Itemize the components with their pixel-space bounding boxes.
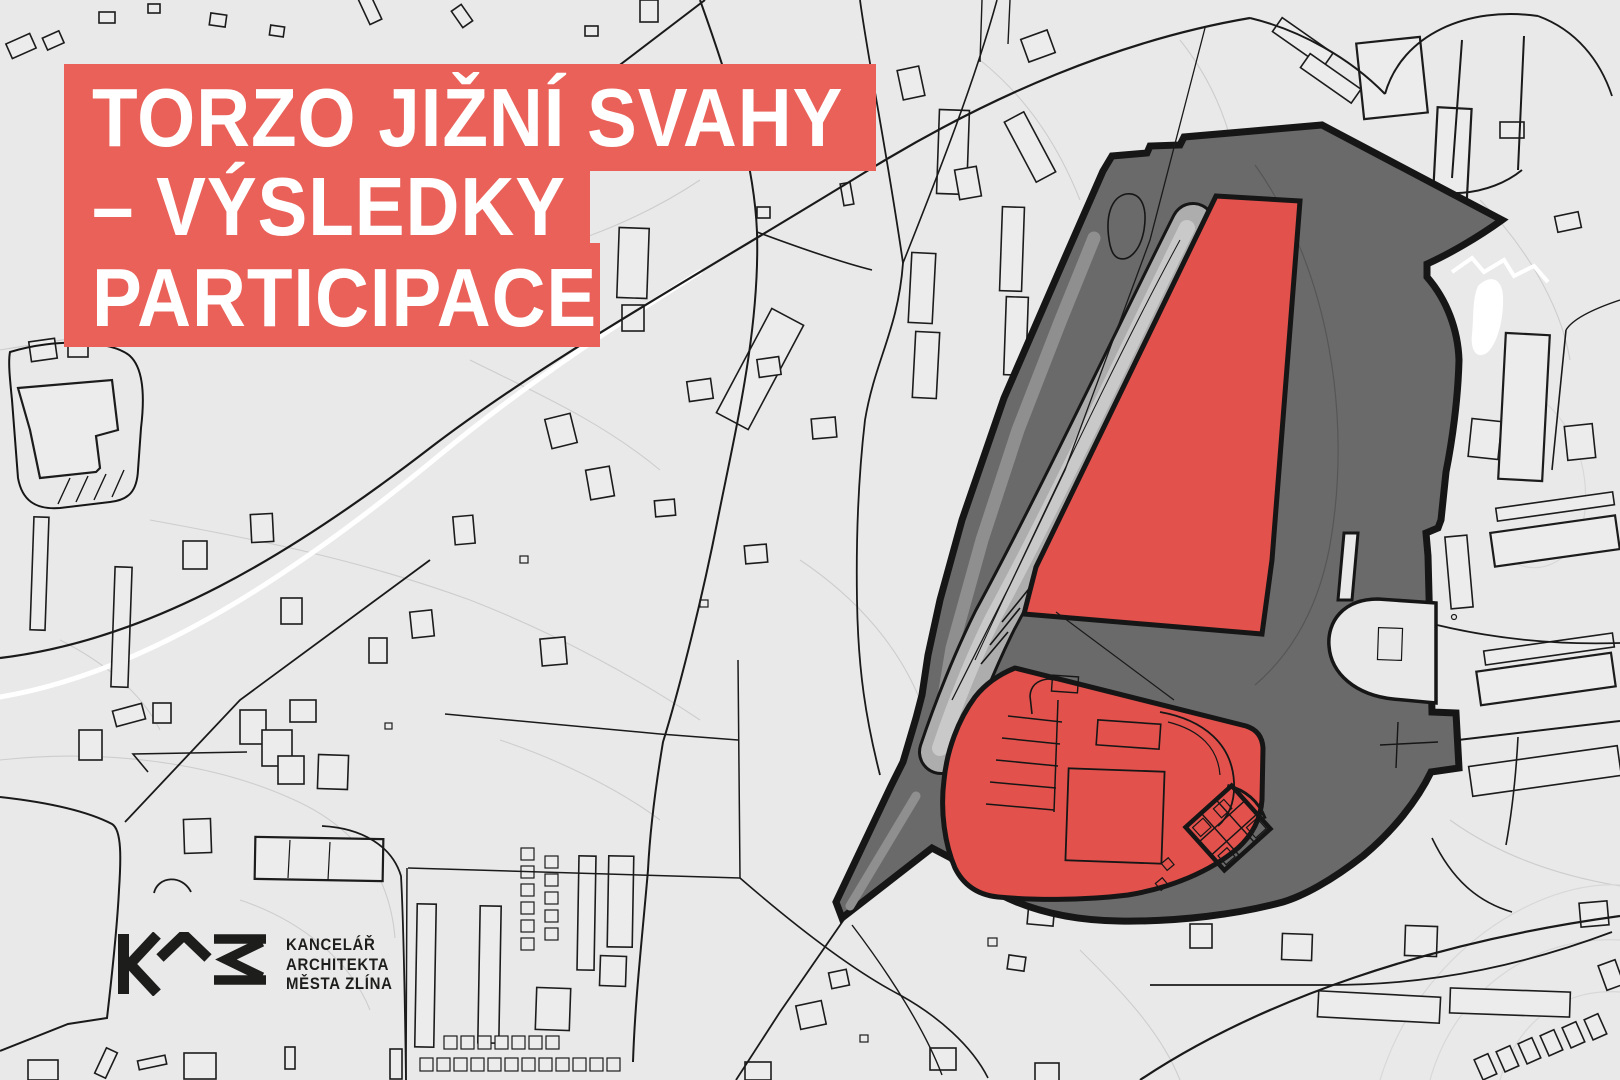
title-banner-row-2: – VÝSLEDKY	[64, 171, 590, 243]
kam-logo-text: KANCELÁŘ ARCHITEKTA MĚSTA ZLÍNA	[286, 935, 393, 994]
logo-k-arms	[130, 935, 157, 993]
logo-line-2: ARCHITEKTA	[286, 955, 393, 975]
logo-caret	[160, 935, 208, 958]
logo-line-3: MĚSTA ZLÍNA	[286, 974, 393, 994]
title-line-1: TORZO JIŽNÍ SVAHY	[92, 70, 843, 166]
title-line-3: PARTICIPACE	[92, 250, 597, 346]
logo-sigma-zigzag	[226, 942, 262, 977]
title-banner-row-3: PARTICIPACE	[64, 243, 600, 347]
logo-line-1: KANCELÁŘ	[286, 935, 393, 955]
poster-stage: TORZO JIŽNÍ SVAHY – VÝSLEDKY PARTICIPACE…	[0, 0, 1620, 1080]
kam-logo: KANCELÁŘ ARCHITEKTA MĚSTA ZLÍNA	[110, 932, 407, 996]
title-line-2: – VÝSLEDKY	[92, 159, 566, 255]
title-banner-row-1: TORZO JIŽNÍ SVAHY	[64, 64, 876, 171]
kam-monogram-icon	[110, 932, 272, 996]
